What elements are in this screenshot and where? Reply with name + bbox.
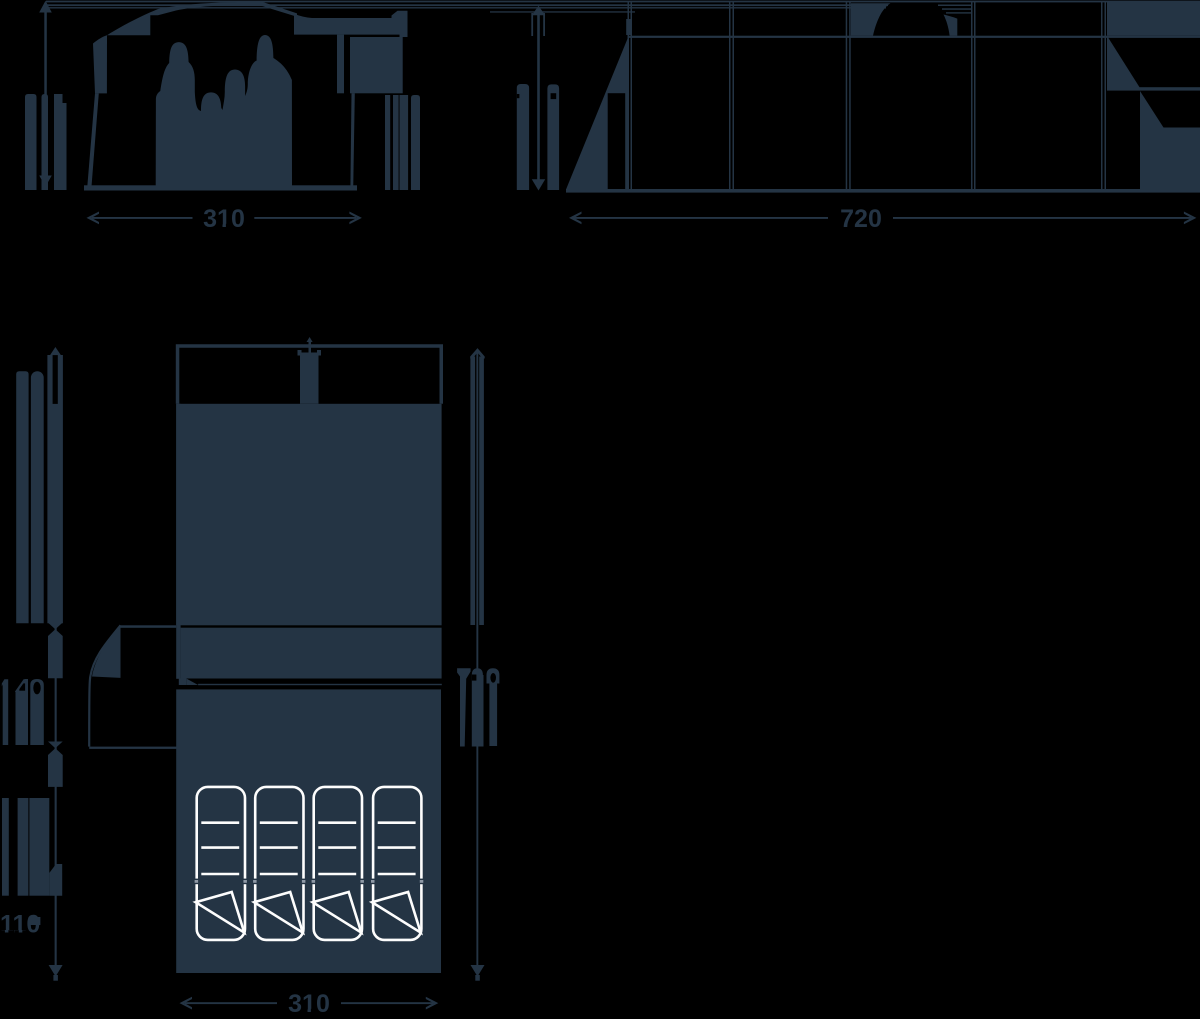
svg-text:310: 310 [203, 205, 245, 233]
svg-text:720: 720 [840, 205, 882, 233]
svg-text:310: 310 [288, 990, 330, 1018]
